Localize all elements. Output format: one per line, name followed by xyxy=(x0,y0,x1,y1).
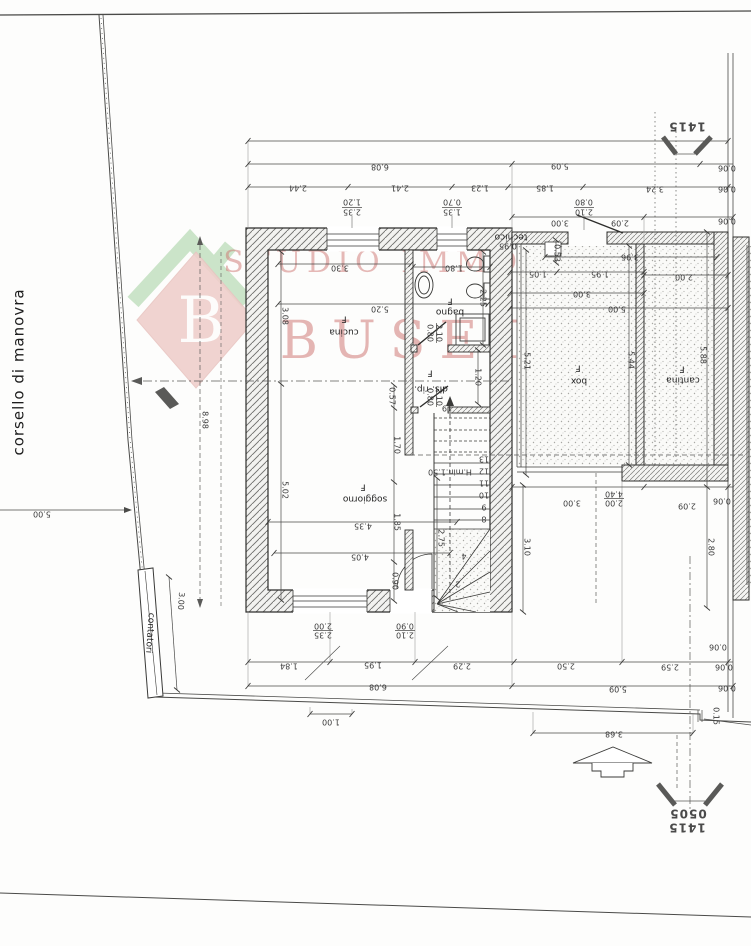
dim-label: 3.00 xyxy=(563,499,581,508)
dim-label: 1.00 xyxy=(322,718,340,727)
dim-label: 3.10 xyxy=(523,538,532,556)
window-bagno xyxy=(437,227,467,252)
dim-label: 0.57 xyxy=(388,387,397,405)
dim-label: F xyxy=(575,363,580,373)
dim-label: 0.95 xyxy=(499,242,517,251)
room-label-cucina: cucina xyxy=(329,327,358,337)
dim-label: 3.24 xyxy=(646,185,664,194)
dim-label: 1.95 xyxy=(364,661,382,670)
dim-label: 2.00 xyxy=(314,622,332,631)
dim-label: 4.40 xyxy=(605,490,623,499)
box-cantina-partition xyxy=(636,244,644,465)
south-boundary-line xyxy=(0,893,751,917)
dim-label: 5.88 xyxy=(699,346,708,364)
dim-label: 2.10 xyxy=(396,631,414,640)
logo-monogram: B xyxy=(177,284,224,358)
dim-label: 1.35 xyxy=(443,208,461,217)
cantina-south-wall xyxy=(622,465,728,481)
room-label-bagno: bagno xyxy=(435,307,464,317)
room-label-box: box xyxy=(570,376,587,386)
dim-label: 0.06 xyxy=(718,185,736,194)
dim-label: 0.06 xyxy=(715,663,733,672)
dim-label: 5.09 xyxy=(551,162,569,171)
dim-label: 2.50 xyxy=(557,662,575,671)
dim-label: 5.00 xyxy=(608,305,626,314)
dim-label: 5.00 xyxy=(33,510,51,519)
dim-label: 2.09 xyxy=(678,502,696,511)
dim-label: 9 xyxy=(481,503,486,512)
dim-label: 2.44 xyxy=(289,184,307,193)
dim-label: 3.30 xyxy=(331,264,349,273)
dim-label: 1.70 xyxy=(393,436,402,454)
dim-label: 0.70 xyxy=(443,198,461,207)
dim-label: 19 xyxy=(442,404,452,413)
dim-label: F xyxy=(427,368,432,378)
dim-label: 0.06 xyxy=(718,684,736,693)
neighbor-west-wall xyxy=(733,237,749,600)
sheet-marker-bottom-sub: 0505 xyxy=(669,807,706,821)
dim-label: 2.35 xyxy=(314,631,332,640)
dim-label: 0.90 xyxy=(391,572,400,590)
east-property-line xyxy=(728,53,733,718)
cantina-east-wall xyxy=(714,232,728,481)
floor-plan-svg: B STUDIO IMMOBILIARE BUSETTI xyxy=(0,0,751,946)
dim-label: F xyxy=(447,296,452,306)
dim-label: 2.59 xyxy=(661,663,679,672)
dim-label: 5.20 xyxy=(371,305,389,314)
dim-label: 10 xyxy=(479,491,489,500)
dim-label: 2.10 xyxy=(435,388,444,406)
dim-label: 1.20 xyxy=(343,198,361,207)
dim-label: 2.75 xyxy=(437,529,446,547)
dim-label: 2.00 xyxy=(675,273,693,282)
dim-label: 6.08 xyxy=(371,163,389,172)
window-soggiorno xyxy=(293,589,367,614)
dim-label: 0.80 xyxy=(426,324,435,342)
dim-label: 1.20 xyxy=(474,368,483,386)
residential-unit-walls xyxy=(246,227,512,614)
dim-label: 2.10 xyxy=(575,208,593,217)
dim-label: F xyxy=(341,314,346,324)
room-label-cantina: cantina xyxy=(666,375,699,385)
dim-label: 5.09 xyxy=(609,685,627,694)
dim-label: 13 xyxy=(479,455,489,464)
dim-label: 12 xyxy=(479,467,489,476)
dim-label: 4 xyxy=(461,552,466,561)
sheet-marker-bottom: 1415 xyxy=(668,821,705,835)
gate-mark xyxy=(155,387,179,409)
dim-label: 1.85 xyxy=(393,513,402,531)
dim-label: 1.80 xyxy=(445,264,463,273)
dim-label: H.min.1.50 xyxy=(428,468,472,477)
dim-label: 2.25 xyxy=(479,289,488,307)
dim-label: 2.80 xyxy=(707,538,716,556)
dim-label: 2.35 xyxy=(343,208,361,217)
dim-label: 3.08 xyxy=(281,307,290,325)
dim-label: 6.08 xyxy=(369,683,387,692)
dim-label: 1.05 xyxy=(529,270,547,279)
dim-label: 2.29 xyxy=(453,662,471,671)
dim-label: 4.35 xyxy=(354,522,372,531)
room-label-soggiorno: soggiorno xyxy=(342,494,387,504)
scanned-floorplan-sheet: B STUDIO IMMOBILIARE BUSETTI xyxy=(0,0,751,946)
dim-label: 3.00 xyxy=(573,290,591,299)
dim-label: 1.84 xyxy=(280,662,298,671)
dim-label: 0.06 xyxy=(713,497,731,506)
window-cucina xyxy=(327,227,379,252)
dim-label: 2.09 xyxy=(611,219,629,228)
dim-label: 2.10 xyxy=(435,324,444,342)
garage-door-line xyxy=(517,467,622,472)
dim-label: F xyxy=(679,364,684,374)
dim-label: F xyxy=(360,482,365,492)
dim-label: 5.44 xyxy=(627,351,636,369)
road-label: corsello di manovra xyxy=(10,288,28,455)
dim-label: 0.15 xyxy=(712,707,721,725)
sheet-marker-top: 1415 xyxy=(668,120,705,134)
dim-label: 3.68 xyxy=(605,730,623,739)
dim-label: 2.00 xyxy=(605,499,623,508)
room-label-tecnico: tecnico xyxy=(494,232,527,242)
dim-label: 0.06 xyxy=(709,643,727,652)
dim-label: 8 xyxy=(481,515,486,524)
entrance-arrow xyxy=(573,747,652,777)
dim-label: 3.00 xyxy=(551,219,569,228)
dim-label: 4.05 xyxy=(351,553,369,562)
north-boundary-line xyxy=(0,11,751,15)
dim-label: 5.02 xyxy=(281,481,290,499)
dim-label: 5.21 xyxy=(523,352,532,370)
dim-label: 0.06 xyxy=(718,217,736,226)
dim-label: 8.98 xyxy=(201,411,210,429)
dim-label: 0.80 xyxy=(426,388,435,406)
dim-label: 0.90 xyxy=(396,622,414,631)
dim-label: 1.95 xyxy=(591,270,609,279)
dim-label: 11 xyxy=(479,479,489,488)
dim-label: 3.00 xyxy=(176,592,186,610)
dim-label: 3.96 xyxy=(621,253,639,262)
dim-label: 0.80 xyxy=(575,198,593,207)
dim-label: 2 xyxy=(455,580,460,589)
dim-label: 1.85 xyxy=(536,184,554,193)
dim-label: 1.23 xyxy=(471,184,489,193)
dim-label: 0.06 xyxy=(718,164,736,173)
dim-label: 2.41 xyxy=(391,184,409,193)
dim-label: 0.53 xyxy=(553,244,562,262)
